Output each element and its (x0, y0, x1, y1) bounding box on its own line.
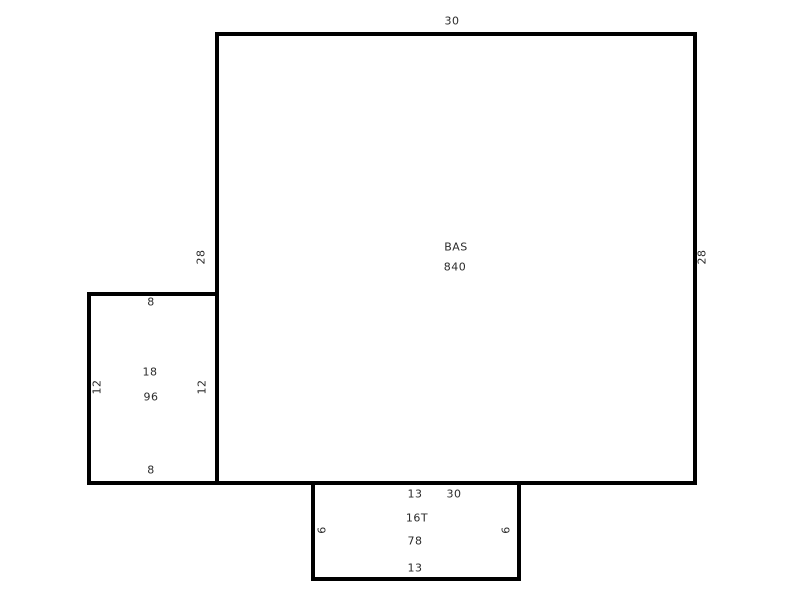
floor-plan-sketch: 30 28 28 BAS 840 30 8 12 12 18 96 8 13 6… (0, 0, 800, 600)
bas-top-dimension: 30 (445, 16, 460, 27)
area18-code-label: 18 (143, 367, 158, 378)
area-bas-outline (215, 32, 697, 485)
bas-code-label: BAS (444, 242, 468, 253)
bas-right-dimension: 28 (697, 250, 708, 265)
area16t-code-label: 16T (406, 513, 428, 524)
area16t-top-dimension: 13 (408, 489, 423, 500)
area18-bottom-dimension: 8 (147, 465, 155, 476)
bas-area-value: 840 (444, 262, 467, 273)
area18-area-value: 96 (144, 392, 159, 403)
area16t-left-dimension: 6 (317, 526, 328, 534)
area16t-bottom-dimension: 13 (408, 563, 423, 574)
area18-top-dimension: 8 (147, 297, 155, 308)
bas-left-dimension: 28 (196, 250, 207, 265)
area16t-right-dimension: 6 (501, 526, 512, 534)
area18-left-dimension: 12 (92, 380, 103, 395)
area18-right-dimension: 12 (197, 380, 208, 395)
area16t-area-value: 78 (408, 536, 423, 547)
bas-bottom-dimension: 30 (447, 489, 462, 500)
